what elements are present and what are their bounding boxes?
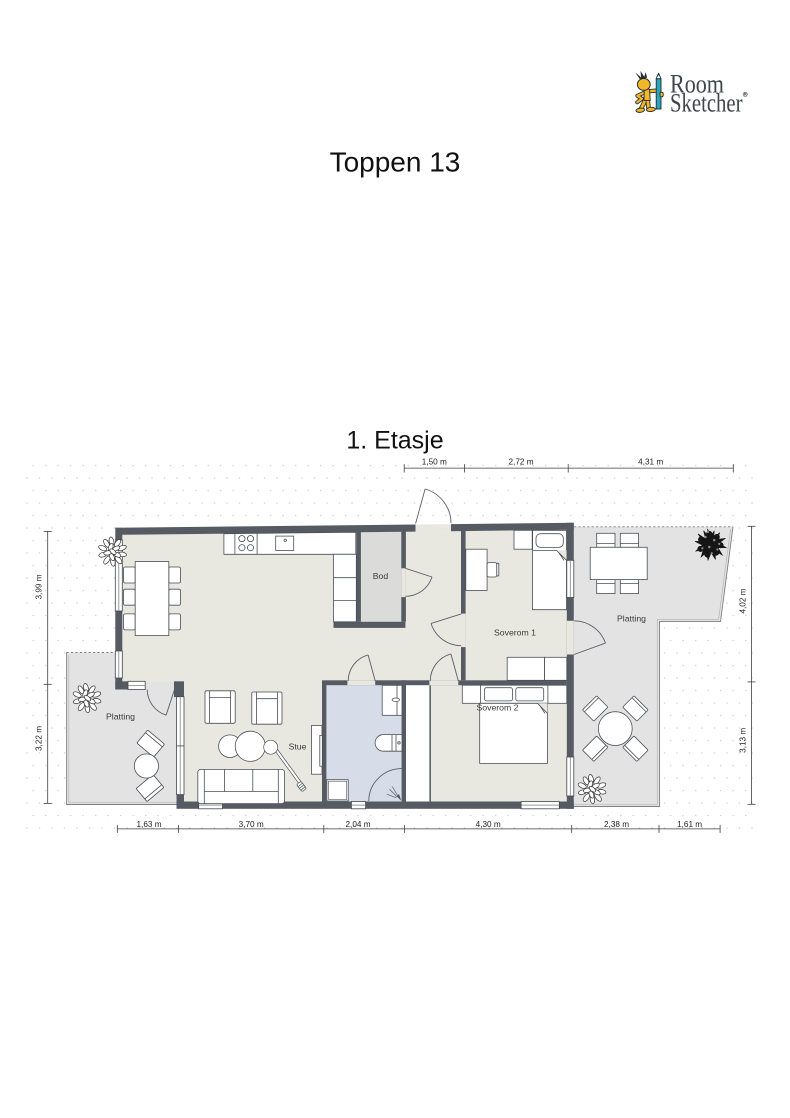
svg-text:2,72 m: 2,72 m	[508, 458, 533, 467]
svg-text:Soverom 2: Soverom 2	[476, 702, 518, 712]
svg-text:4,31 m: 4,31 m	[638, 458, 663, 467]
svg-text:1,61 m: 1,61 m	[677, 820, 702, 829]
svg-text:1,63 m: 1,63 m	[136, 820, 161, 829]
svg-text:Sketcher: Sketcher	[670, 89, 743, 118]
svg-text:3,13 m: 3,13 m	[739, 728, 748, 753]
svg-text:2,04 m: 2,04 m	[345, 820, 370, 829]
svg-text:3,22 m: 3,22 m	[35, 726, 44, 751]
svg-text:Platting: Platting	[106, 711, 135, 721]
svg-text:Soverom 1: Soverom 1	[494, 627, 536, 637]
svg-text:Stue: Stue	[289, 741, 307, 751]
svg-text:4,30 m: 4,30 m	[476, 820, 501, 829]
svg-text:3,70 m: 3,70 m	[239, 820, 264, 829]
svg-text:1. Etasje: 1. Etasje	[346, 427, 443, 455]
svg-text:1,50 m: 1,50 m	[422, 458, 447, 467]
svg-text:Toppen 13: Toppen 13	[330, 147, 461, 178]
svg-text:4,02 m: 4,02 m	[739, 588, 748, 613]
svg-text:Platting: Platting	[617, 614, 646, 624]
svg-text:3,99 m: 3,99 m	[35, 574, 44, 599]
svg-text:Bod: Bod	[373, 571, 389, 581]
svg-text:2,38 m: 2,38 m	[604, 820, 629, 829]
